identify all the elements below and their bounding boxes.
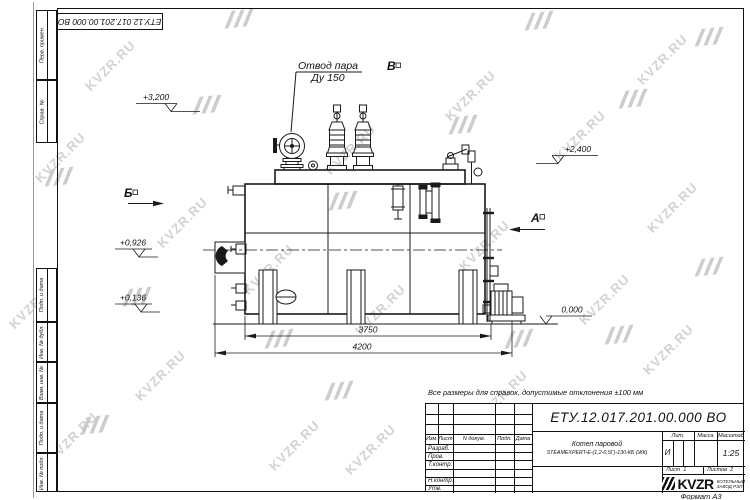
safety-valve-right: [353, 105, 374, 170]
row-utv: Утв.: [428, 486, 442, 492]
col-podp: Подп.: [495, 436, 514, 442]
elevation-label: +2,400: [565, 144, 592, 154]
lit-value: И: [662, 448, 673, 457]
manhole: [276, 290, 296, 304]
scale-value: 1:25: [717, 448, 745, 458]
elevation-label: 0,000: [561, 305, 583, 315]
burner-box: [215, 242, 245, 273]
elevation-mark-3200: +3,200: [136, 92, 200, 112]
title-block: Изм. Лист N докум. Подп. Дата Разраб. Пр…: [425, 403, 744, 492]
lever-safety-valve: [443, 145, 469, 170]
feed-pump: [488, 284, 525, 324]
scale-label: Масштаб: [717, 433, 745, 439]
steam-outlet-valve: [273, 134, 305, 171]
sheet-cell: Лист 1: [666, 467, 686, 473]
water-level-gauge: [391, 184, 405, 219]
sheets-cell: Листов 2: [707, 467, 733, 473]
product-name-line1: Котел паровой: [572, 441, 622, 448]
safety-valve-left: [327, 105, 348, 170]
sheets-value: 2: [730, 467, 733, 473]
sheets-label: Листов: [707, 467, 727, 473]
row-prov: Пров.: [428, 454, 444, 460]
reference-dimensions-note: Все размеры для справок, допустимые откл…: [428, 388, 643, 397]
dimension-label: 4200: [353, 342, 372, 352]
row-tkontr: Т.контр.: [428, 462, 452, 468]
elevation-label: +3,200: [143, 92, 170, 102]
col-izm: Изм.: [426, 436, 438, 442]
col-data: Дата: [514, 436, 532, 442]
view-arrow-b: Б: [124, 186, 164, 206]
view-arrow-v: В: [387, 59, 401, 73]
format-label: Формат А3: [658, 492, 744, 500]
dimension-label: 3750: [359, 325, 378, 335]
elevation-label: +0,136: [120, 293, 147, 303]
elevation-label: +0,926: [120, 238, 147, 248]
elevation-mark-0136: +0,136: [115, 293, 160, 313]
col-list: Лист: [438, 436, 453, 442]
elevation-mark-0000: 0,000: [540, 305, 592, 325]
callout-line2: Ду 150: [310, 72, 344, 84]
elevation-mark-2400: +2,400: [536, 144, 598, 164]
callout-line1: Отвод пара: [298, 60, 358, 72]
elevation-mark-0926: +0,926: [115, 238, 158, 258]
view-label-v: В: [387, 59, 396, 73]
product-name: Котел паровой STEAMEXPERT-Е-(1,2-0,5Г)-1…: [532, 431, 662, 466]
level-indicator-column: [419, 183, 441, 224]
view-arrow-a: А: [509, 211, 545, 232]
kvzr-brand: KVZR: [678, 476, 714, 492]
row-nkontr: Н.контр.: [428, 478, 453, 484]
view-label-a: А: [530, 211, 540, 225]
sheet-label: Лист: [666, 467, 680, 473]
view-label-b: Б: [124, 186, 133, 200]
product-name-line2: STEAMEXPERT-Е-(1,2-0,5Г)-130-КБ (ЖК): [547, 450, 648, 456]
drawing-sheet: KVZR.RU KVZR.RU KVZR.RU KVZR.RU KVZR.RU …: [0, 0, 750, 500]
row-razrab: Разраб.: [428, 446, 450, 452]
dimension-3750: 3750: [245, 316, 491, 340]
kvzr-logo: KVZR КОТЕЛЬНЫЙ ЗАВОД РЭП: [662, 474, 745, 493]
kvzr-sub2: ЗАВОД РЭП: [717, 484, 745, 489]
mass-label: Масса: [694, 433, 717, 439]
vent-rod: [468, 151, 482, 184]
platform-gland: [309, 161, 318, 170]
doc-number: ЕТУ.12.017.201.00.000 ВО: [532, 404, 745, 431]
kvzr-logo-icon: [662, 477, 675, 490]
col-ndokum: N докум.: [453, 436, 495, 442]
callout-steam-outlet: Отвод пара Ду 150: [291, 60, 362, 132]
sheet-value: 1: [683, 467, 686, 473]
lit-label: Лит.: [662, 433, 694, 439]
